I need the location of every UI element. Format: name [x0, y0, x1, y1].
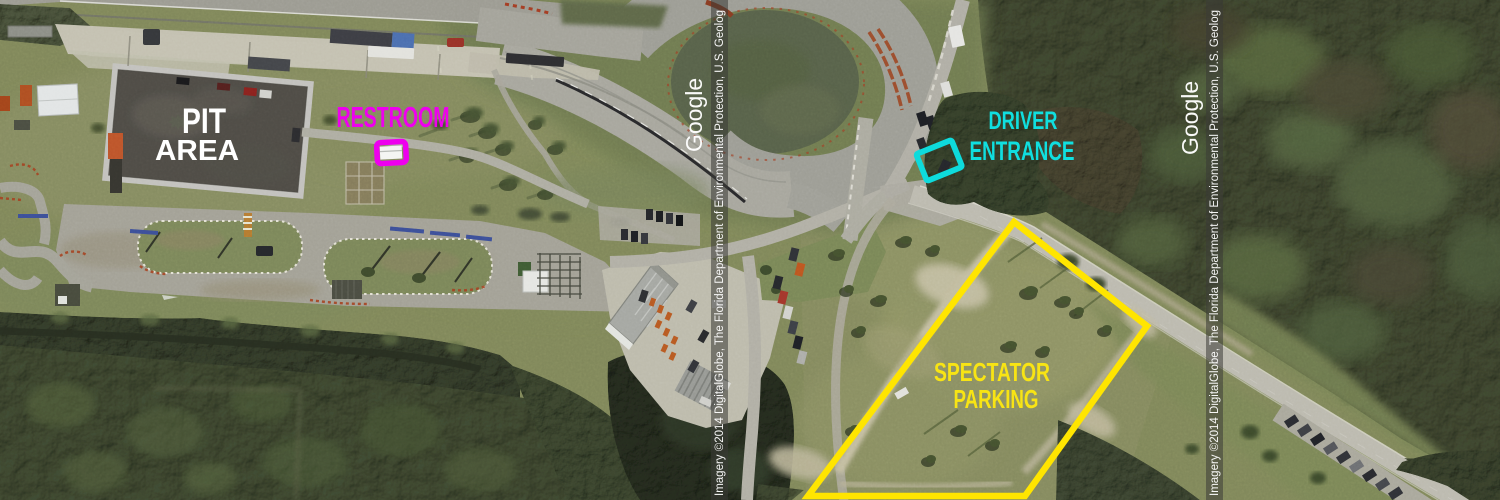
- svg-text:Google: Google: [1177, 81, 1203, 155]
- svg-text:SPECTATOR: SPECTATOR: [934, 357, 1050, 387]
- svg-text:RESTROOM: RESTROOM: [337, 102, 450, 134]
- svg-text:Imagery ©2014 DigitalGlobe, Th: Imagery ©2014 DigitalGlobe, The Florida …: [1209, 10, 1221, 496]
- svg-text:DRIVER: DRIVER: [989, 107, 1058, 135]
- svg-text:Imagery ©2014 DigitalGlobe, Th: Imagery ©2014 DigitalGlobe, The Florida …: [714, 10, 726, 496]
- svg-text:ENTRANCE: ENTRANCE: [970, 136, 1075, 166]
- svg-text:AREA: AREA: [155, 135, 239, 167]
- svg-text:Google: Google: [681, 78, 707, 152]
- svg-text:PARKING: PARKING: [954, 384, 1039, 414]
